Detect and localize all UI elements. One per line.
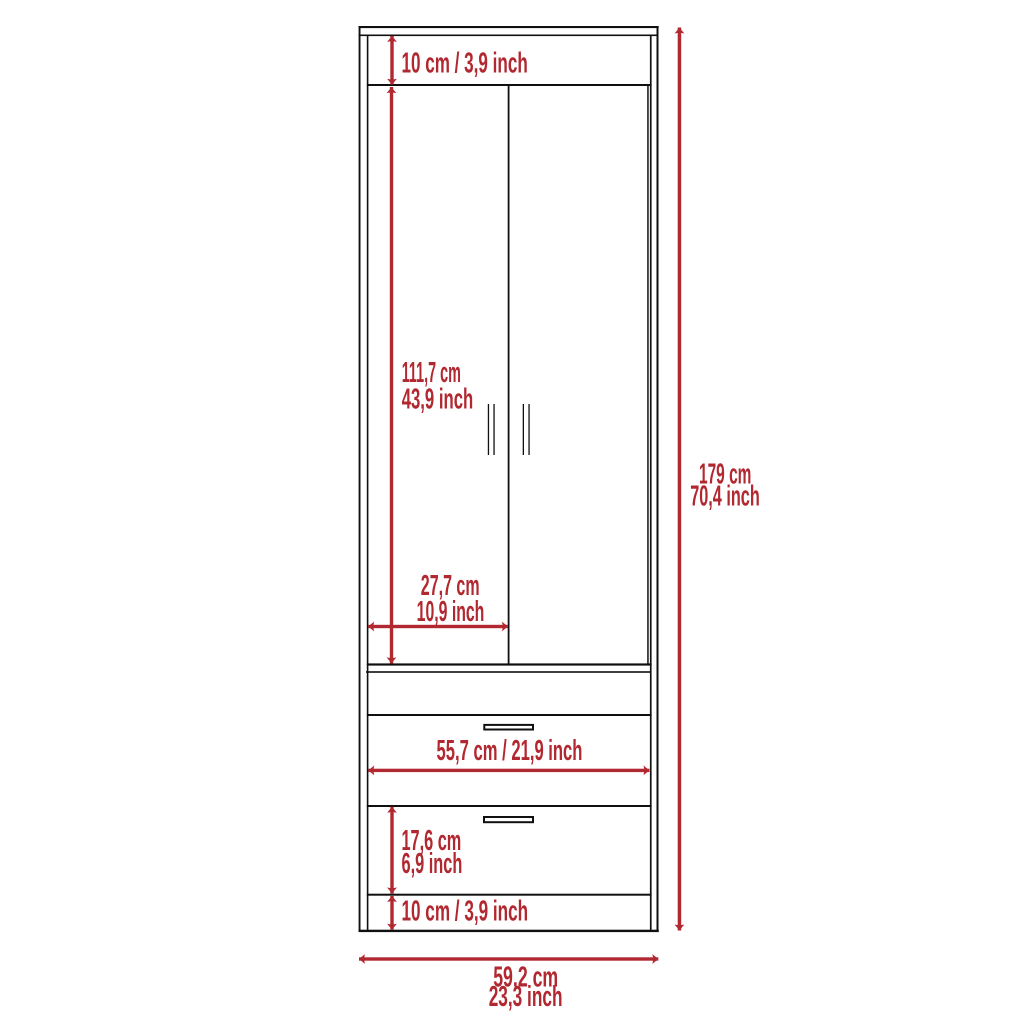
svg-text:23,3 inch: 23,3 inch xyxy=(489,981,563,1013)
svg-text:55,7 cm / 21,9 inch: 55,7 cm / 21,9 inch xyxy=(437,735,583,767)
svg-text:10,9 inch: 10,9 inch xyxy=(417,596,485,628)
svg-text:10 cm / 3,9 inch: 10 cm / 3,9 inch xyxy=(402,896,529,928)
svg-text:10 cm / 3,9 inch: 10 cm / 3,9 inch xyxy=(402,48,528,80)
svg-text:43,9 inch: 43,9 inch xyxy=(402,383,474,415)
svg-text:70,4 inch: 70,4 inch xyxy=(690,481,760,513)
svg-text:6,9 inch: 6,9 inch xyxy=(402,848,463,880)
